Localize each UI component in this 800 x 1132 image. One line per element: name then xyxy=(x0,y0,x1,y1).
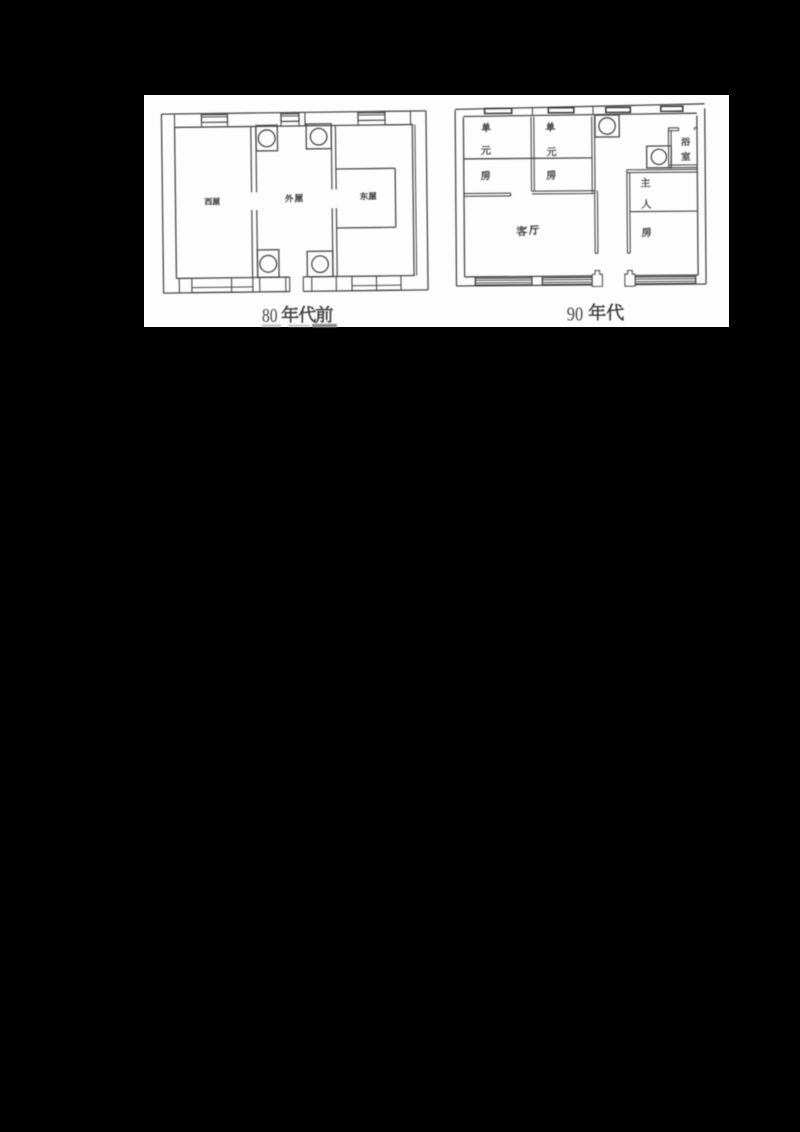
svg-text:80: 80 xyxy=(262,306,278,327)
svg-text:90: 90 xyxy=(567,304,583,325)
